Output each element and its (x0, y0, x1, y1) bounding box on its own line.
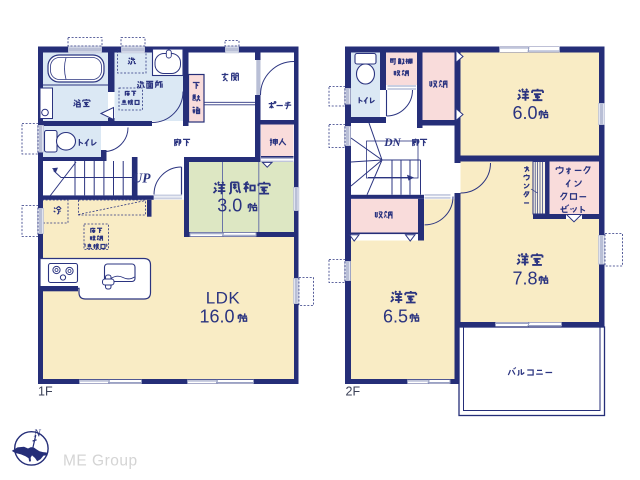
svg-text:UP: UP (133, 171, 152, 186)
svg-text:3.0: 3.0 (217, 196, 242, 216)
svg-text:6.0: 6.0 (512, 103, 537, 123)
svg-text:1F: 1F (38, 385, 53, 399)
svg-text:2F: 2F (346, 385, 361, 399)
svg-text:16.0: 16.0 (199, 307, 234, 327)
svg-text:DN: DN (383, 137, 401, 149)
svg-text:7.8: 7.8 (512, 269, 537, 289)
svg-text:N: N (33, 429, 42, 440)
svg-text:ME Group: ME Group (63, 453, 138, 470)
svg-text:LDK: LDK (206, 289, 241, 308)
svg-text:6.5: 6.5 (383, 307, 408, 327)
